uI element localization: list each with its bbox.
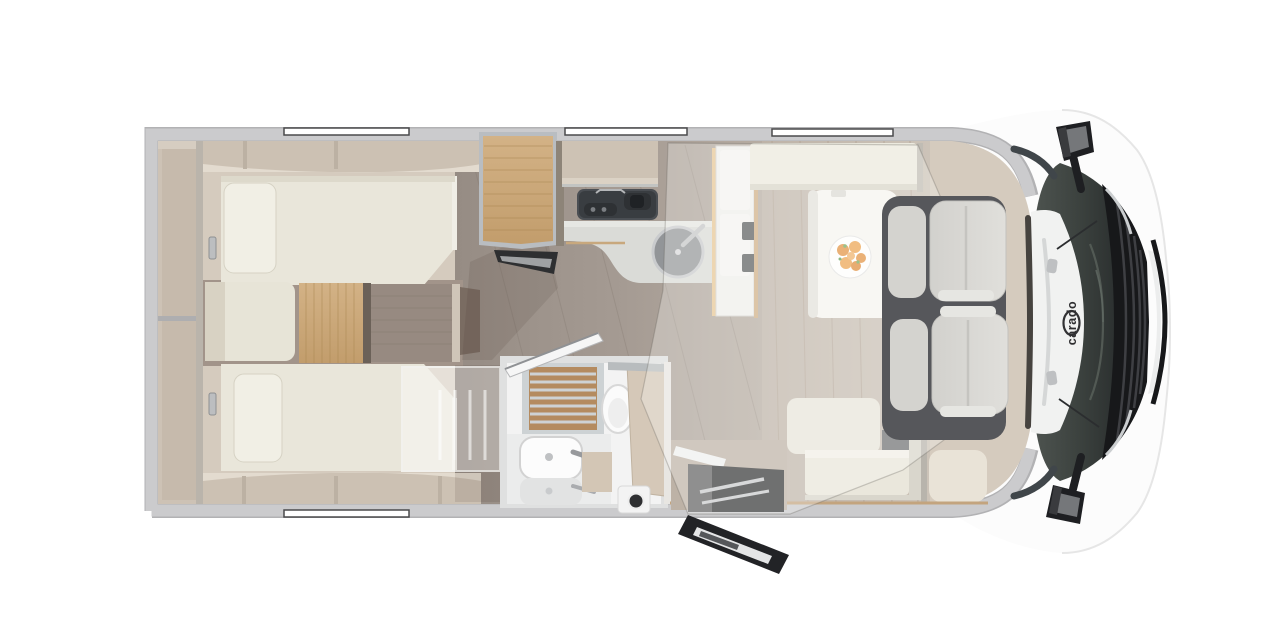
svg-text:carado: carado [1065, 301, 1079, 346]
